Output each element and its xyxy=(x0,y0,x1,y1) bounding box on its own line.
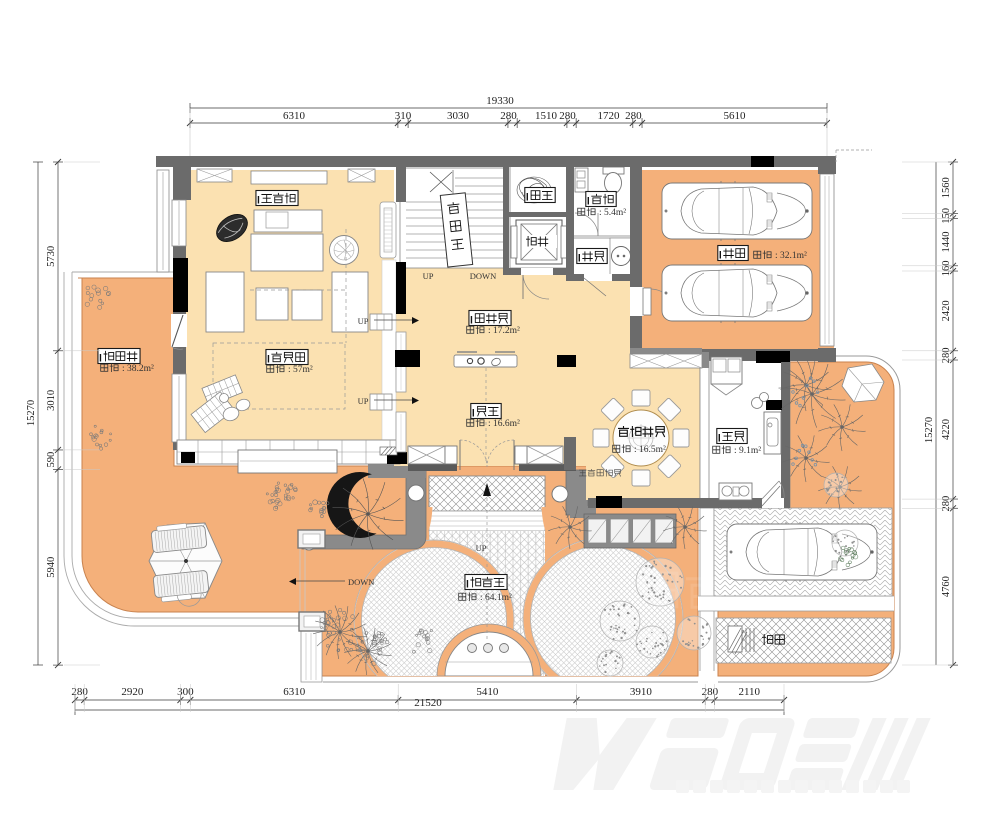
svg-text:280: 280 xyxy=(559,110,576,122)
svg-text:280: 280 xyxy=(625,110,642,122)
svg-text:280: 280 xyxy=(941,496,952,512)
svg-text:15270: 15270 xyxy=(924,417,935,443)
svg-text:: 38.2m²: : 38.2m² xyxy=(122,364,154,374)
svg-text:2920: 2920 xyxy=(121,686,144,698)
svg-text:UP: UP xyxy=(476,543,487,553)
svg-text:300: 300 xyxy=(177,686,194,698)
svg-text:UP: UP xyxy=(358,396,369,406)
svg-text:UP: UP xyxy=(423,271,434,281)
svg-text:6310: 6310 xyxy=(283,110,306,122)
svg-text:19330: 19330 xyxy=(486,95,514,107)
svg-text:4760: 4760 xyxy=(941,576,952,597)
svg-text:310: 310 xyxy=(395,110,412,122)
svg-text:5730: 5730 xyxy=(46,246,57,267)
svg-text:1510: 1510 xyxy=(535,110,558,122)
svg-text:: 5.4m²: : 5.4m² xyxy=(599,208,626,218)
svg-text:15270: 15270 xyxy=(26,400,37,426)
svg-text:280: 280 xyxy=(500,110,517,122)
svg-text:5610: 5610 xyxy=(723,110,746,122)
svg-text:DOWN: DOWN xyxy=(348,577,374,587)
svg-text:: 9.1m²: : 9.1m² xyxy=(734,446,761,456)
svg-text:6310: 6310 xyxy=(283,686,306,698)
svg-text:280: 280 xyxy=(71,686,88,698)
svg-text:DOWN: DOWN xyxy=(470,271,496,281)
svg-text:3030: 3030 xyxy=(447,110,470,122)
svg-text:: 32.1m²: : 32.1m² xyxy=(775,251,807,261)
svg-text:280: 280 xyxy=(702,686,719,698)
svg-text:2420: 2420 xyxy=(941,300,952,321)
svg-text:3910: 3910 xyxy=(630,686,653,698)
svg-text:: 17.2m²: : 17.2m² xyxy=(488,326,520,336)
svg-text:1720: 1720 xyxy=(597,110,620,122)
svg-text:590: 590 xyxy=(46,452,57,468)
svg-text:1560: 1560 xyxy=(941,177,952,198)
svg-text:UP: UP xyxy=(358,316,369,326)
svg-text:: 57m²: : 57m² xyxy=(288,365,313,375)
svg-text:1440: 1440 xyxy=(941,232,952,253)
svg-text:4220: 4220 xyxy=(941,419,952,440)
svg-text:3010: 3010 xyxy=(46,390,57,411)
svg-text:5410: 5410 xyxy=(476,686,499,698)
svg-text:21520: 21520 xyxy=(414,697,442,709)
svg-text:: 16.5m²: : 16.5m² xyxy=(634,445,666,455)
svg-text:: 16.6m²: : 16.6m² xyxy=(488,419,520,429)
svg-text:2110: 2110 xyxy=(738,686,760,698)
svg-text:280: 280 xyxy=(941,348,952,364)
svg-text:5940: 5940 xyxy=(46,557,57,578)
svg-text:: 64.1m²: : 64.1m² xyxy=(480,593,512,603)
